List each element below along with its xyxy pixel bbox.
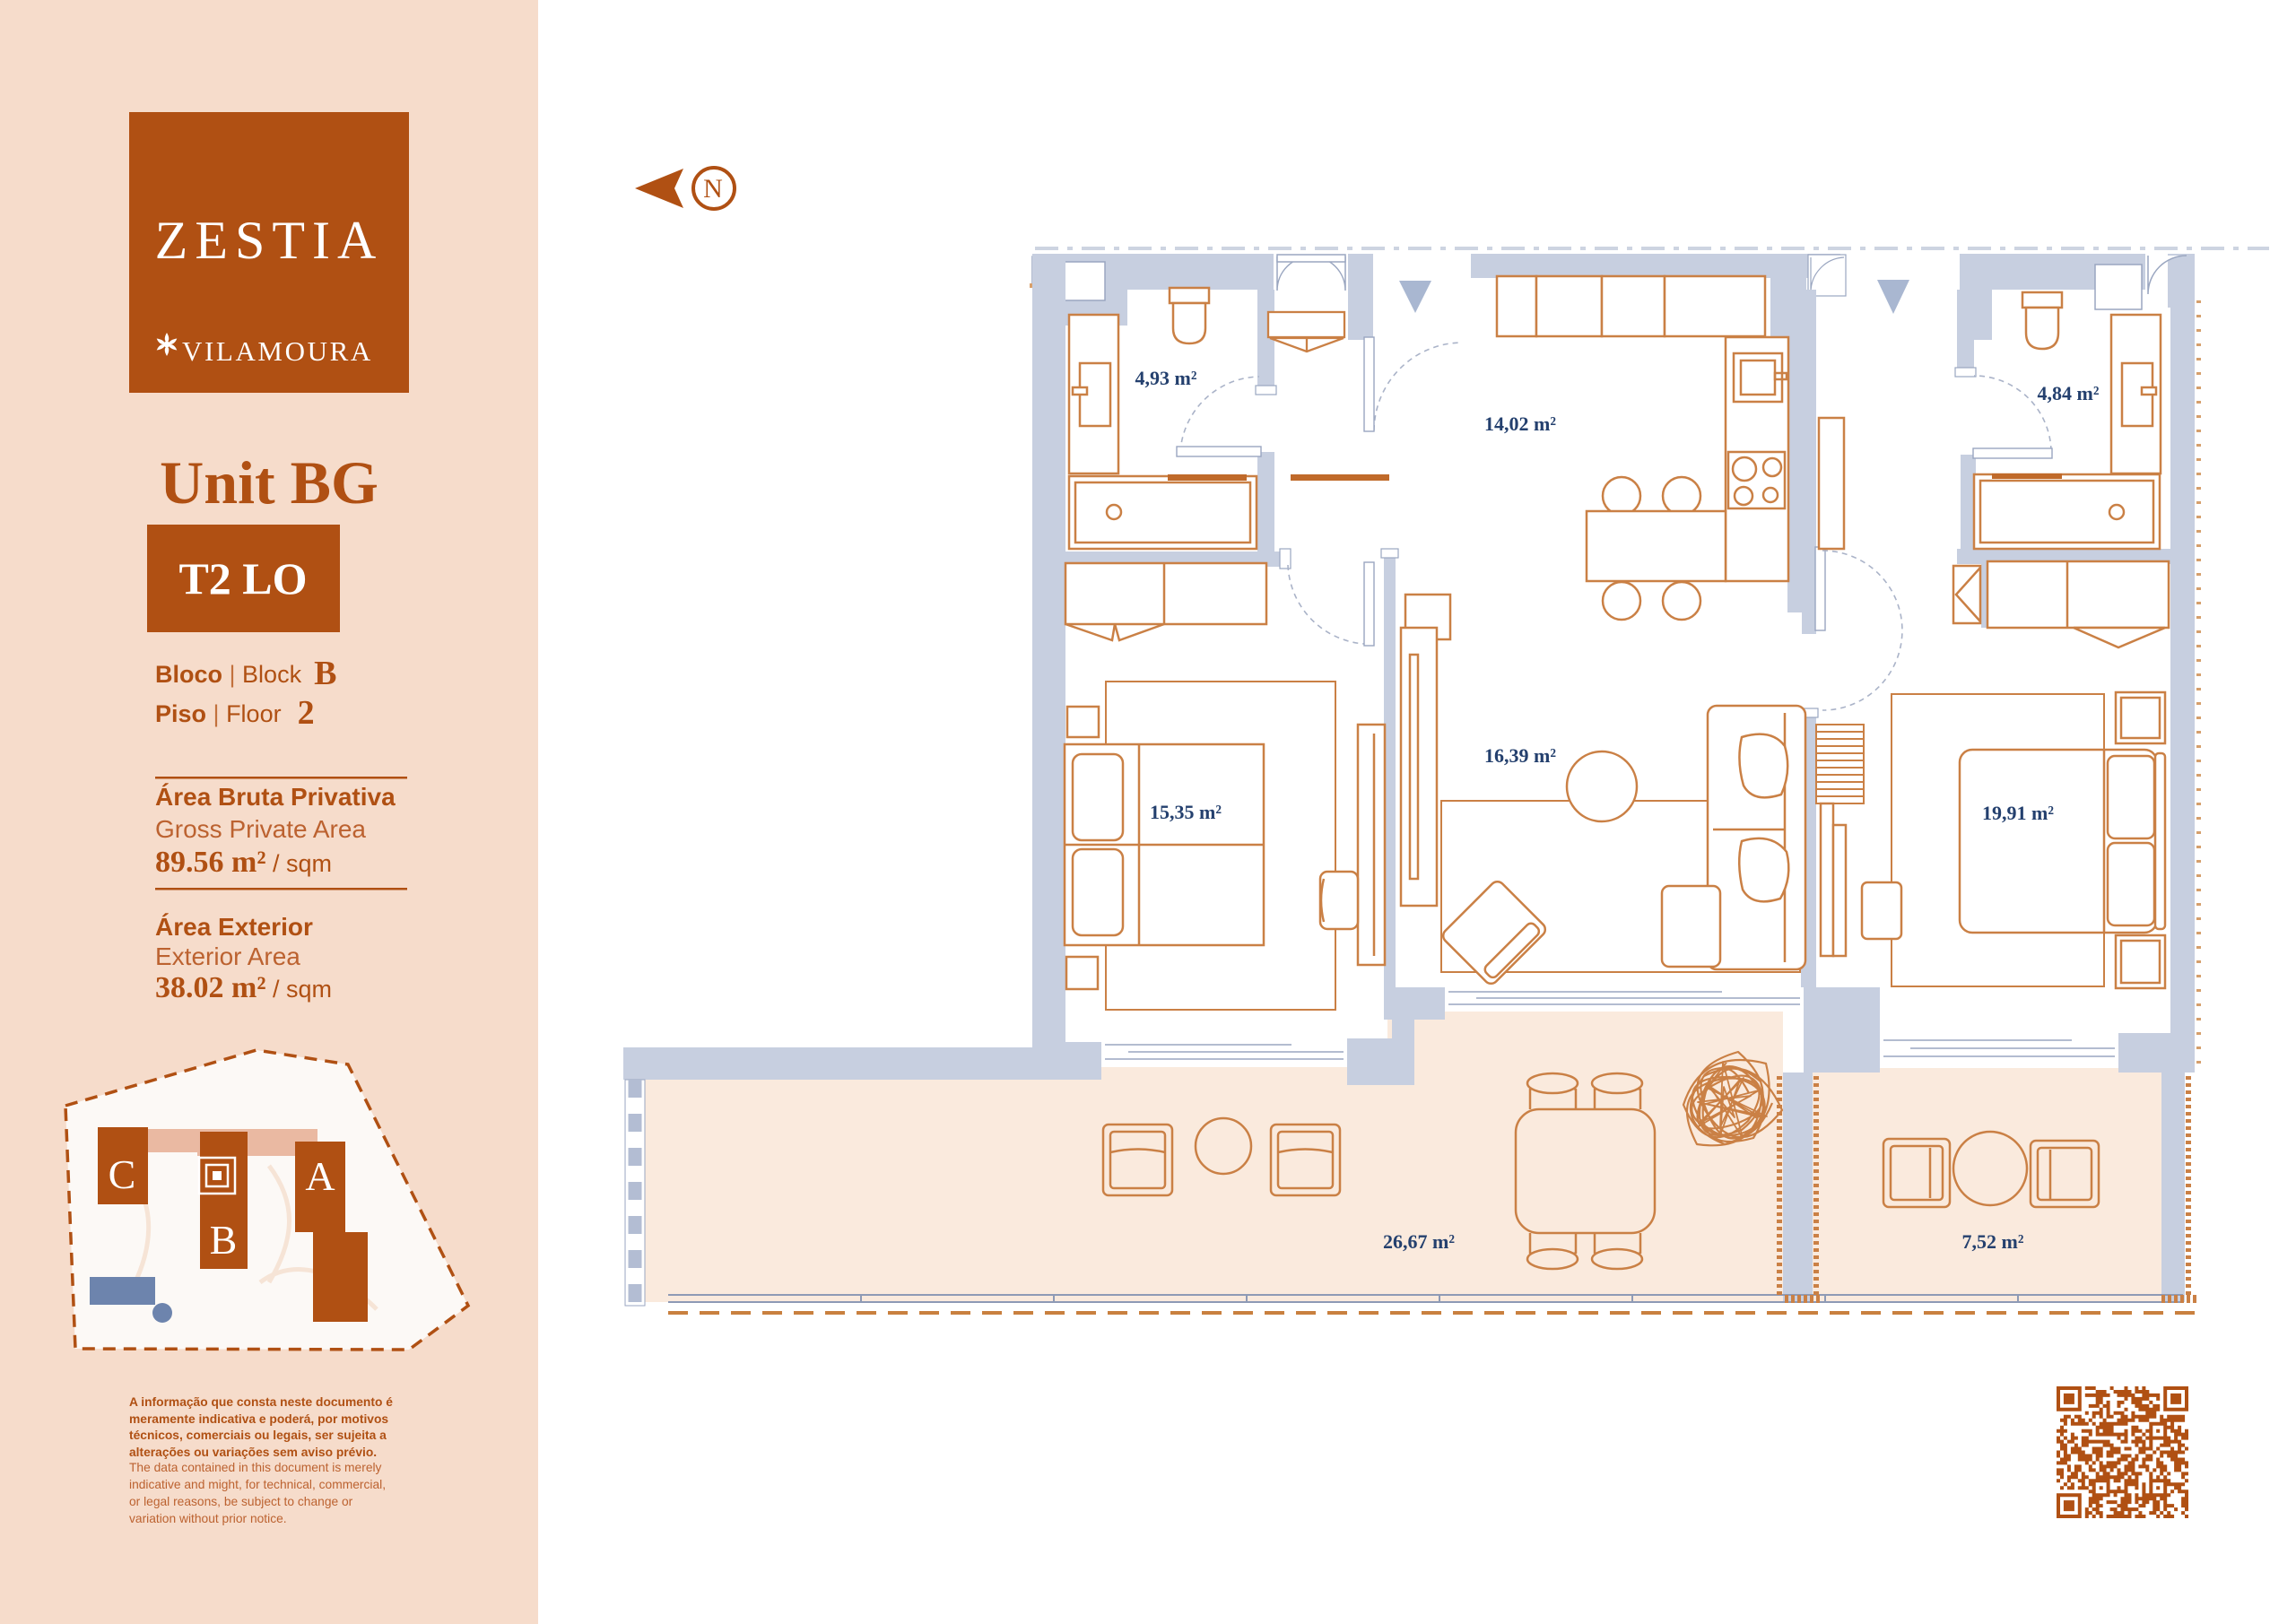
svg-text:or legal reasons, be subject t: or legal reasons, be subject to change o… [129,1495,353,1508]
svg-text:Gross Private Area: Gross Private Area [155,815,366,843]
svg-text:19,91 m²: 19,91 m² [1982,802,2054,824]
svg-text:15,35 m²: 15,35 m² [1150,801,1222,823]
svg-text:38.02 m² / sqm: 38.02 m² / sqm [155,971,332,1004]
svg-text:4,84 m²: 4,84 m² [2038,382,2100,404]
svg-text:A informação que consta neste: A informação que consta neste documento … [129,1395,393,1409]
svg-text:C: C [109,1151,136,1197]
svg-text:meramente indicativa e poderá,: meramente indicativa e poderá, por motiv… [129,1412,388,1426]
svg-text:Área Bruta Privativa: Área Bruta Privativa [155,783,396,811]
svg-text:indicative and might, for tech: indicative and might, for technical, com… [129,1478,386,1491]
svg-text:Unit BG: Unit BG [160,448,378,517]
svg-text:16,39 m²: 16,39 m² [1484,744,1556,767]
svg-text:variation without prior notice: variation without prior notice. [129,1512,287,1525]
svg-text:89.56 m² / sqm: 89.56 m² / sqm [155,846,332,879]
svg-text:T2 LO: T2 LO [178,553,307,604]
svg-text:alterações ou variações sem av: alterações ou variações sem aviso prévio… [129,1446,377,1459]
svg-text:4,93 m²: 4,93 m² [1135,367,1197,389]
svg-text:B: B [210,1217,238,1263]
svg-text:N: N [703,174,723,204]
svg-text:Área Exterior: Área Exterior [155,913,313,941]
svg-text:Exterior Area: Exterior Area [155,942,300,970]
svg-text:7,52 m²: 7,52 m² [1962,1230,2024,1253]
svg-text:ZESTIA: ZESTIA [155,211,384,270]
svg-text:VILAMOURA: VILAMOURA [182,335,373,367]
svg-text:26,67 m²: 26,67 m² [1383,1230,1455,1253]
svg-text:A: A [305,1153,335,1199]
svg-text:técnicos, comerciais ou legais: técnicos, comerciais ou legais, ser suje… [129,1429,387,1442]
svg-text:14,02 m²: 14,02 m² [1484,413,1556,435]
svg-text:The data contained in this doc: The data contained in this document is m… [129,1461,382,1474]
